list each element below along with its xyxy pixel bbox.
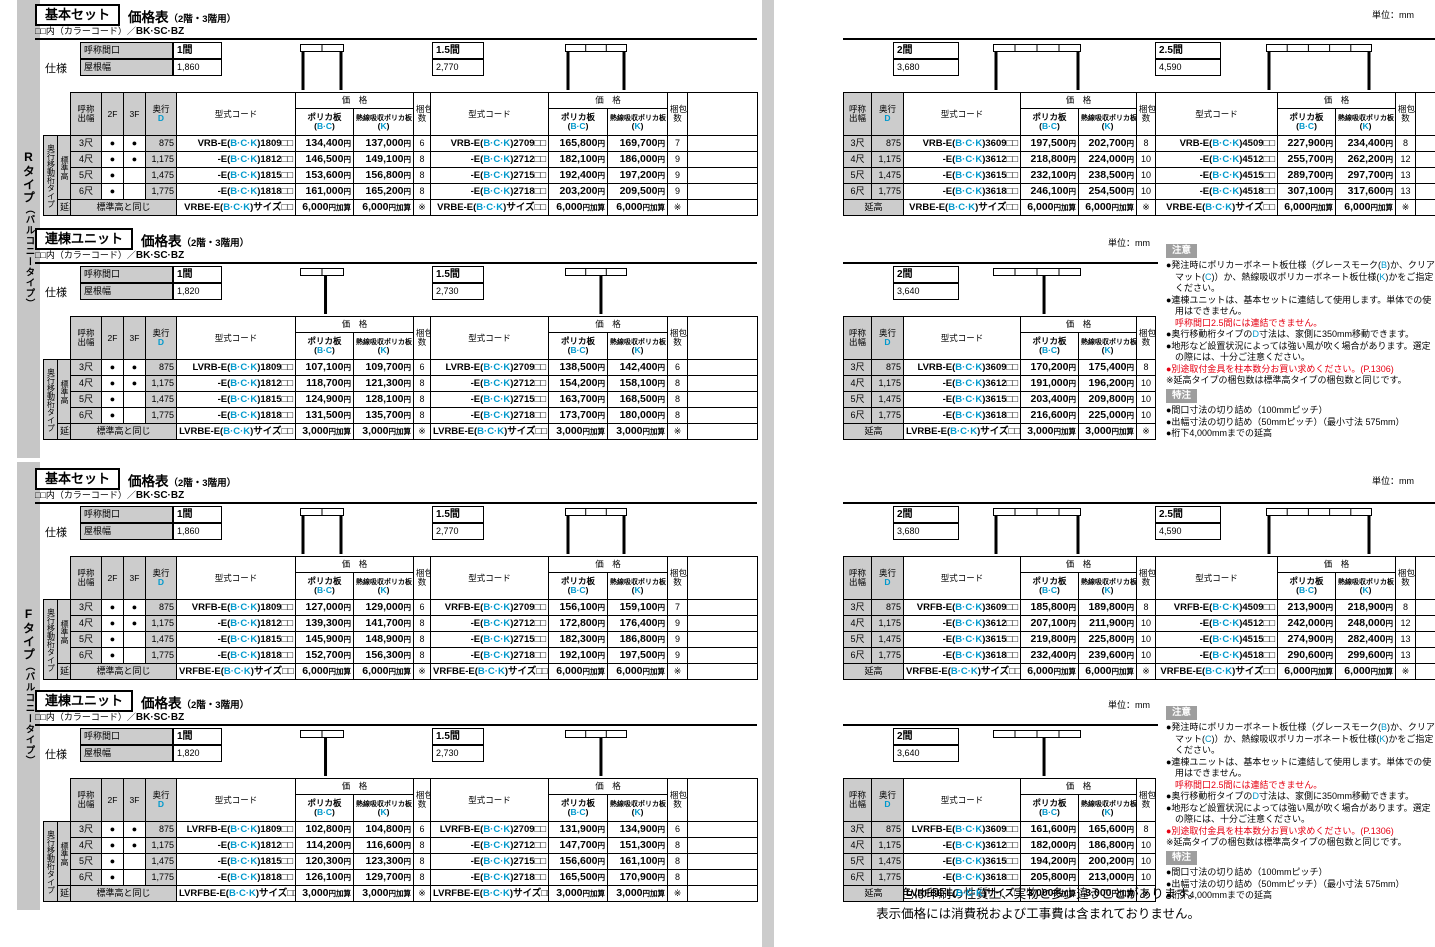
depth-value-cell: 1,775 xyxy=(872,184,904,200)
model-code-cell: LVRB-E(B·C·K)3609□□ xyxy=(904,360,1021,376)
roof-diagram xyxy=(565,730,627,781)
roof-diagram xyxy=(565,44,627,95)
floor-2f-dot-cell: ● xyxy=(102,632,124,648)
price-bc-cell: 161,600円 xyxy=(1021,822,1079,838)
pack-count-cell: 10 xyxy=(1137,152,1156,168)
col-header-model: 型式コード xyxy=(431,93,549,136)
ext-price-bc-cell: 3,000円加算 xyxy=(549,424,608,440)
col-header-model: 型式コード xyxy=(904,93,1021,136)
special-order-badge: 特注 xyxy=(1166,851,1197,865)
col-header-2f: 2F xyxy=(102,317,124,360)
depth-value-cell: 1,775 xyxy=(146,648,177,664)
ext-price-bc-cell: 6,000円加算 xyxy=(1021,200,1079,216)
col-header-pack: 梱包数 xyxy=(668,317,688,360)
empty-spacer-col xyxy=(1416,93,1435,136)
model-code-cell: -E(B·C·K)1812□□ xyxy=(177,616,296,632)
caution-item: ●連棟ユニットは、基本セットに連結して使用します。単体での使用はできません。 xyxy=(1166,295,1435,318)
price-k-cell: 158,100円 xyxy=(608,376,668,392)
col-header-depth: 奥行D xyxy=(872,93,904,136)
pack-count-cell: 10 xyxy=(1137,616,1156,632)
pack-count-cell: 6 xyxy=(414,822,431,838)
empty-spacer-col xyxy=(688,136,758,152)
notes-block: 注意●発注時にポリカーボネート板仕様（グレースモーク(B)か、クリアマット(C)… xyxy=(1166,704,1435,902)
ext-price-k-cell: 3,000円加算 xyxy=(354,886,414,902)
pack-count-cell: 7 xyxy=(668,136,688,152)
name-width-cell: 4尺 xyxy=(71,376,102,392)
model-code-cell: -E(B·C·K)1815□□ xyxy=(177,168,296,184)
depth-value-cell: 1,475 xyxy=(872,392,904,408)
roof-diagram xyxy=(1266,44,1372,95)
model-code-cell: -E(B·C·K)2718□□ xyxy=(431,408,549,424)
ext-price-bc-cell: 6,000円加算 xyxy=(549,200,608,216)
depth-value-cell: 1,475 xyxy=(146,168,177,184)
name-width-cell: 5尺 xyxy=(844,168,872,184)
name-width-cell: 3尺 xyxy=(844,822,872,838)
price-k-cell: 299,600円 xyxy=(1336,648,1396,664)
empty-spacer-col xyxy=(1416,632,1435,648)
unit-label: 単位：mm xyxy=(1372,474,1414,487)
model-code-cell: LVRB-E(B·C·K)2709□□ xyxy=(431,360,549,376)
empty-spacer-col xyxy=(1416,136,1435,152)
floor-3f-dot-cell: ● xyxy=(124,838,146,854)
depth-value-cell: 1,175 xyxy=(872,376,904,392)
col-header-price: 価 格 xyxy=(296,93,414,109)
col-header-heat-absorb: 熱線吸収ポリカ板(K) xyxy=(1079,109,1137,136)
price-k-cell: 161,100円 xyxy=(608,854,668,870)
ext-pack-cell: ※ xyxy=(414,886,431,902)
spec-label: 仕様 xyxy=(45,524,67,540)
price-k-cell: 197,200円 xyxy=(608,168,668,184)
price-k-cell: 213,000円 xyxy=(1079,870,1137,886)
ext-price-k-cell: 3,000円加算 xyxy=(1079,424,1137,440)
ext-model-code-cell: VRBE-E(B·C·K)サイズ□□ xyxy=(177,200,296,216)
model-code-cell: -E(B·C·K)1812□□ xyxy=(177,838,296,854)
pack-count-cell: 9 xyxy=(668,184,688,200)
price-bc-cell: 131,900円 xyxy=(549,822,608,838)
name-width-cell: 4尺 xyxy=(71,838,102,854)
empty-spacer-col xyxy=(1416,152,1435,168)
price-k-cell: 196,200円 xyxy=(1079,376,1137,392)
col-header-3f: 3F xyxy=(124,557,146,600)
price-bc-cell: 165,500円 xyxy=(549,870,608,886)
price-bc-cell: 165,800円 xyxy=(549,136,608,152)
pack-count-cell: 8 xyxy=(414,376,431,392)
pack-count-cell: 8 xyxy=(414,408,431,424)
std-height-vertical-label: 標準高 xyxy=(58,600,71,664)
price-k-cell: 168,500円 xyxy=(608,392,668,408)
col-header-heat-absorb: 熱線吸収ポリカ板(K) xyxy=(608,109,668,136)
roof-width-value: 2,770 xyxy=(432,59,484,76)
price-bc-cell: 170,200円 xyxy=(1021,360,1079,376)
ext-height-label: 延高 xyxy=(844,200,904,216)
price-table-right: 呼称出幅奥行D型式コード価 格梱包数ポリカ板(B·C)熱線吸収ポリカ板(K)3尺… xyxy=(843,316,1156,440)
roof-width-row-label: 屋根幅 xyxy=(80,745,173,762)
name-width-cell: 5尺 xyxy=(71,392,102,408)
col-header-pack: 梱包数 xyxy=(1137,317,1156,360)
span-value: 2.5間 xyxy=(1155,42,1221,59)
price-k-cell: 151,300円 xyxy=(608,838,668,854)
model-code-cell: -E(B·C·K)3615□□ xyxy=(904,168,1021,184)
model-code-cell: -E(B·C·K)3615□□ xyxy=(904,392,1021,408)
depth-value-cell: 1,175 xyxy=(146,616,177,632)
floor-2f-dot-cell: ● xyxy=(102,376,124,392)
floor-2f-dot-cell: ● xyxy=(102,136,124,152)
price-table-right: 呼称出幅奥行D型式コード価 格梱包数ポリカ板(B·C)熱線吸収ポリカ板(K)3尺… xyxy=(843,778,1156,902)
ext-price-k-cell: 3,000円加算 xyxy=(354,424,414,440)
unit-label: 単位：mm xyxy=(1372,8,1414,21)
pack-count-cell: 10 xyxy=(1137,648,1156,664)
price-k-cell: 189,800円 xyxy=(1079,600,1137,616)
pack-count-cell: 6 xyxy=(668,360,688,376)
model-code-cell: -E(B·C·K)1815□□ xyxy=(177,632,296,648)
col-header-polycarb: ポリカ板(B·C) xyxy=(549,573,608,600)
col-header-model: 型式コード xyxy=(904,779,1021,822)
price-bc-cell: 227,900円 xyxy=(1278,136,1336,152)
floor-3f-dot-cell: ● xyxy=(124,600,146,616)
ext-model-code-cell: LVRBE-E(B·C·K)サイズ□□ xyxy=(177,424,296,440)
col-header-pack: 梱包数 xyxy=(668,779,688,822)
depth-value-cell: 875 xyxy=(146,600,177,616)
pack-count-cell: 8 xyxy=(414,392,431,408)
pack-count-cell: 13 xyxy=(1396,632,1416,648)
floor-2f-dot-cell: ● xyxy=(102,152,124,168)
price-table-left: 呼称出幅2F3F奥行D型式コード価 格梱包数型式コード価 格梱包数ポリカ板(B·… xyxy=(43,778,758,902)
empty-spacer-col xyxy=(1416,168,1435,184)
pack-count-cell: 9 xyxy=(668,632,688,648)
price-bc-cell: 124,900円 xyxy=(296,392,354,408)
name-width-cell: 6尺 xyxy=(71,184,102,200)
depth-value-cell: 1,775 xyxy=(872,870,904,886)
std-height-vertical-label: 標準高 xyxy=(58,360,71,424)
empty-spacer-col xyxy=(688,557,758,600)
name-width-cell: 3尺 xyxy=(71,600,102,616)
roof-width-value: 4,590 xyxy=(1155,59,1221,76)
col-header-price: 価 格 xyxy=(296,317,414,333)
price-k-cell: 186,800円 xyxy=(608,632,668,648)
pack-count-cell: 8 xyxy=(414,184,431,200)
floor-3f-dot-cell xyxy=(124,870,146,886)
col-header-polycarb: ポリカ板(B·C) xyxy=(1021,333,1079,360)
caution-item: ※延高タイプの梱包数は標準高タイプの梱包数と同じです。 xyxy=(1166,837,1435,849)
col-header-model: 型式コード xyxy=(177,317,296,360)
floor-2f-dot-cell: ● xyxy=(102,822,124,838)
span-value: 2間 xyxy=(893,266,959,283)
price-k-cell: 135,700円 xyxy=(354,408,414,424)
ext-model-code-cell: VRFBE-E(B·C·K)サイズ□□ xyxy=(431,664,549,680)
col-header-polycarb: ポリカ板(B·C) xyxy=(1278,573,1336,600)
roof-width-value: 3,640 xyxy=(893,745,959,762)
pack-count-cell: 8 xyxy=(1396,600,1416,616)
header-spacer xyxy=(44,317,71,360)
span-value: 2.5間 xyxy=(1155,506,1221,523)
empty-spacer-col xyxy=(1416,648,1435,664)
caution-badge: 注意 xyxy=(1166,706,1197,720)
col-header-model: 型式コード xyxy=(1156,93,1278,136)
floor-3f-dot-cell: ● xyxy=(124,360,146,376)
ext-pack-cell: ※ xyxy=(1137,886,1156,902)
roof-diagram xyxy=(993,730,1081,781)
floor-2f-dot-cell: ● xyxy=(102,360,124,376)
col-header-polycarb: ポリカ板(B·C) xyxy=(296,795,354,822)
col-header-polycarb: ポリカ板(B·C) xyxy=(549,333,608,360)
name-width-cell: 5尺 xyxy=(71,632,102,648)
special-order-item: ●間口寸法の切り詰め（100mmピッチ） xyxy=(1166,867,1435,879)
col-header-name-width: 呼称出幅 xyxy=(71,557,102,600)
price-k-cell: 134,900円 xyxy=(608,822,668,838)
col-header-price: 価 格 xyxy=(1021,317,1137,333)
col-header-price: 価 格 xyxy=(549,317,668,333)
roof-diagram xyxy=(300,268,344,319)
name-width-cell: 3尺 xyxy=(71,136,102,152)
model-code-cell: -E(B·C·K)3618□□ xyxy=(904,184,1021,200)
name-width-cell: 4尺 xyxy=(844,838,872,854)
span-value: 2間 xyxy=(893,506,959,523)
col-header-model: 型式コード xyxy=(177,93,296,136)
depth-value-cell: 1,775 xyxy=(146,870,177,886)
ext-price-bc-cell: 3,000円加算 xyxy=(296,886,354,902)
price-k-cell: 186,000円 xyxy=(608,152,668,168)
pack-count-cell: 8 xyxy=(414,870,431,886)
col-header-model: 型式コード xyxy=(431,317,549,360)
section-badge: 基本セット xyxy=(35,4,120,26)
col-header-polycarb: ポリカ板(B·C) xyxy=(549,109,608,136)
col-header-3f: 3F xyxy=(124,779,146,822)
col-header-name-width: 呼称出幅 xyxy=(71,317,102,360)
ext-price-bc-cell: 6,000円加算 xyxy=(296,664,354,680)
price-bc-cell: 182,100円 xyxy=(549,152,608,168)
depth-value-cell: 1,475 xyxy=(872,168,904,184)
span-value: 1間 xyxy=(173,728,222,745)
price-k-cell: 209,800円 xyxy=(1079,392,1137,408)
price-bc-cell: 173,700円 xyxy=(549,408,608,424)
price-k-cell: 137,000円 xyxy=(354,136,414,152)
col-header-2f: 2F xyxy=(102,557,124,600)
price-bc-cell: 242,000円 xyxy=(1278,616,1336,632)
name-width-cell: 3尺 xyxy=(71,360,102,376)
model-code-cell: -E(B·C·K)3615□□ xyxy=(904,632,1021,648)
col-header-price: 価 格 xyxy=(296,779,414,795)
span-value: 2間 xyxy=(893,728,959,745)
roof-diagram xyxy=(993,44,1081,95)
ext-height-label: 延高 xyxy=(58,886,71,902)
roof-diagram xyxy=(1266,508,1372,559)
col-header-pack: 梱包数 xyxy=(668,93,688,136)
model-code-cell: -E(B·C·K)4515□□ xyxy=(1156,168,1278,184)
pack-count-cell: 8 xyxy=(668,376,688,392)
span-value: 1.5間 xyxy=(432,42,484,59)
col-header-price: 価 格 xyxy=(296,557,414,573)
ext-price-k-cell: 6,000円加算 xyxy=(1336,200,1396,216)
model-code-cell: -E(B·C·K)1812□□ xyxy=(177,152,296,168)
model-code-cell: LVRFB-E(B·C·K)3609□□ xyxy=(904,822,1021,838)
section-title-row: 基本セット価格表（2階・3階用） xyxy=(35,468,236,490)
pack-count-cell: 8 xyxy=(1137,600,1156,616)
span-value: 1.5間 xyxy=(432,728,484,745)
section-title-row: 基本セット価格表（2階・3階用） xyxy=(35,4,236,26)
caution-item: ●奥行移動桁タイプのD寸法は、家側に350mm移動できます。 xyxy=(1166,791,1435,803)
floor-3f-dot-cell xyxy=(124,648,146,664)
section-title-row: 連棟ユニット価格表（2階・3階用） xyxy=(35,690,249,712)
col-header-depth: 奥行D xyxy=(872,317,904,360)
depth-value-cell: 1,775 xyxy=(146,408,177,424)
price-bc-cell: 192,100円 xyxy=(549,648,608,664)
price-k-cell: 156,800円 xyxy=(354,168,414,184)
price-bc-cell: 172,800円 xyxy=(549,616,608,632)
model-code-cell: LVRB-E(B·C·K)1809□□ xyxy=(177,360,296,376)
pack-count-cell: 8 xyxy=(668,838,688,854)
model-code-cell: -E(B·C·K)3618□□ xyxy=(904,870,1021,886)
price-bc-cell: 232,400円 xyxy=(1021,648,1079,664)
roof-width-row-label: 屋根幅 xyxy=(80,59,173,76)
roof-width-row-label: 屋根幅 xyxy=(80,283,173,300)
header-spacer xyxy=(44,93,71,136)
ext-height-label: 延高 xyxy=(58,200,71,216)
price-k-cell: 165,200円 xyxy=(354,184,414,200)
price-table-left: 呼称出幅2F3F奥行D型式コード価 格梱包数型式コード価 格梱包数ポリカ板(B·… xyxy=(43,316,758,440)
same-as-std-cell: 標準高と同じ xyxy=(71,200,177,216)
col-header-polycarb: ポリカ板(B·C) xyxy=(1021,573,1079,600)
depth-value-cell: 1,175 xyxy=(146,376,177,392)
name-width-cell: 4尺 xyxy=(844,376,872,392)
depth-value-cell: 875 xyxy=(872,822,904,838)
ext-pack-cell: ※ xyxy=(1396,664,1416,680)
col-header-pack: 梱包数 xyxy=(1137,779,1156,822)
depth-value-cell: 1,175 xyxy=(872,152,904,168)
model-code-cell: -E(B·C·K)1818□□ xyxy=(177,648,296,664)
price-bc-cell: 232,100円 xyxy=(1021,168,1079,184)
spec-label: 仕様 xyxy=(45,60,67,76)
pack-count-cell: 9 xyxy=(668,152,688,168)
empty-spacer-col xyxy=(688,408,758,424)
model-code-cell: -E(B·C·K)2712□□ xyxy=(431,376,549,392)
ext-height-label: 延高 xyxy=(58,424,71,440)
roof-width-row-label: 屋根幅 xyxy=(80,523,173,540)
pack-count-cell: 10 xyxy=(1137,184,1156,200)
floor-2f-dot-cell: ● xyxy=(102,600,124,616)
pack-count-cell: 10 xyxy=(1137,408,1156,424)
col-header-heat-absorb: 熱線吸収ポリカ板(K) xyxy=(1336,109,1396,136)
header-spacer xyxy=(44,557,71,600)
price-k-cell: 123,300円 xyxy=(354,854,414,870)
model-code-cell: -E(B·C·K)4512□□ xyxy=(1156,616,1278,632)
model-code-cell: -E(B·C·K)2718□□ xyxy=(431,648,549,664)
col-header-pack: 梱包数 xyxy=(414,93,431,136)
span-value: 1間 xyxy=(173,42,222,59)
empty-spacer-col xyxy=(688,93,758,136)
roof-width-value: 3,640 xyxy=(893,283,959,300)
price-bc-cell: 203,200円 xyxy=(549,184,608,200)
model-code-cell: LVRFB-E(B·C·K)2709□□ xyxy=(431,822,549,838)
empty-spacer-col xyxy=(688,822,758,838)
floor-3f-dot-cell: ● xyxy=(124,136,146,152)
price-bc-cell: 161,000円 xyxy=(296,184,354,200)
col-header-heat-absorb: 熱線吸収ポリカ板(K) xyxy=(608,573,668,600)
price-table-left: 呼称出幅2F3F奥行D型式コード価 格梱包数型式コード価 格梱包数ポリカ板(B·… xyxy=(43,92,758,216)
name-width-cell: 3尺 xyxy=(844,136,872,152)
col-header-depth: 奥行D xyxy=(146,779,177,822)
span-value: 1.5間 xyxy=(432,506,484,523)
spec-label: 仕様 xyxy=(45,284,67,300)
col-header-heat-absorb: 熱線吸収ポリカ板(K) xyxy=(608,333,668,360)
price-k-cell: 218,900円 xyxy=(1336,600,1396,616)
pack-count-cell: 10 xyxy=(1137,854,1156,870)
name-width-cell: 4尺 xyxy=(71,616,102,632)
col-header-depth: 奥行D xyxy=(146,557,177,600)
ext-price-bc-cell: 3,000円加算 xyxy=(549,886,608,902)
roof-width-value: 2,730 xyxy=(432,283,484,300)
price-bc-cell: 146,500円 xyxy=(296,152,354,168)
name-width-cell: 5尺 xyxy=(844,392,872,408)
price-bc-cell: 154,200円 xyxy=(549,376,608,392)
pack-count-cell: 6 xyxy=(414,600,431,616)
pack-count-cell: 12 xyxy=(1396,152,1416,168)
depth-value-cell: 1,775 xyxy=(146,184,177,200)
col-header-price: 価 格 xyxy=(1021,557,1137,573)
caution-item: ●発注時にポリカーボネート板仕様（グレースモーク(B)か、クリアマット(C)）か… xyxy=(1166,722,1435,757)
col-header-heat-absorb: 熱線吸収ポリカ板(K) xyxy=(608,795,668,822)
color-code-rule-right xyxy=(843,710,1158,726)
name-width-cell: 3尺 xyxy=(844,600,872,616)
price-bc-cell: 145,900円 xyxy=(296,632,354,648)
model-code-cell: -E(B·C·K)2715□□ xyxy=(431,632,549,648)
caution-item: ●別途取付金具を柱本数分お買い求めください。(P.1306) xyxy=(1166,364,1435,376)
price-bc-cell: 102,800円 xyxy=(296,822,354,838)
price-bc-cell: 120,300円 xyxy=(296,854,354,870)
col-header-price: 価 格 xyxy=(549,779,668,795)
header-spacer xyxy=(44,779,71,822)
ext-price-k-cell: 3,000円加算 xyxy=(608,424,668,440)
empty-spacer-col xyxy=(688,360,758,376)
model-code-cell: -E(B·C·K)3618□□ xyxy=(904,408,1021,424)
price-bc-cell: 131,500円 xyxy=(296,408,354,424)
std-height-vertical-label: 標準高 xyxy=(58,822,71,886)
col-header-pack: 梱包数 xyxy=(414,779,431,822)
color-code-rule-right xyxy=(843,248,1158,264)
pack-count-cell: 8 xyxy=(414,168,431,184)
price-bc-cell: 191,000円 xyxy=(1021,376,1079,392)
ext-model-code-cell: LVRBE-E(B·C·K)サイズ□□ xyxy=(431,424,549,440)
col-header-price: 価 格 xyxy=(1021,779,1137,795)
depth-value-cell: 875 xyxy=(146,360,177,376)
price-k-cell: 116,600円 xyxy=(354,838,414,854)
price-bc-cell: 153,600円 xyxy=(296,168,354,184)
col-header-name-width: 呼称出幅 xyxy=(844,93,872,136)
col-header-pack: 梱包数 xyxy=(1396,557,1416,600)
ext-price-k-cell: 3,000円加算 xyxy=(1079,886,1137,902)
floor-2f-dot-cell: ● xyxy=(102,408,124,424)
price-table-left: 呼称出幅2F3F奥行D型式コード価 格梱包数型式コード価 格梱包数ポリカ板(B·… xyxy=(43,556,758,680)
price-k-cell: 262,200円 xyxy=(1336,152,1396,168)
col-header-pack: 梱包数 xyxy=(1396,93,1416,136)
model-code-cell: VRFB-E(B·C·K)1809□□ xyxy=(177,600,296,616)
section-badge: 連棟ユニット xyxy=(35,228,133,250)
empty-spacer-col xyxy=(688,376,758,392)
depth-value-cell: 875 xyxy=(146,822,177,838)
name-width-cell: 4尺 xyxy=(71,152,102,168)
roof-diagram xyxy=(300,508,344,559)
price-bc-cell: 138,500円 xyxy=(549,360,608,376)
price-k-cell: 148,900円 xyxy=(354,632,414,648)
model-code-cell: -E(B·C·K)2712□□ xyxy=(431,616,549,632)
price-bc-cell: 118,700円 xyxy=(296,376,354,392)
col-header-pack: 梱包数 xyxy=(668,557,688,600)
price-k-cell: 239,600円 xyxy=(1079,648,1137,664)
price-bc-cell: 182,000円 xyxy=(1021,838,1079,854)
roof-width-value: 1,820 xyxy=(173,283,222,300)
caution-item: ※延高タイプの梱包数は標準高タイプの梱包数と同じです。 xyxy=(1166,375,1435,387)
model-code-cell: VRB-E(B·C·K)4509□□ xyxy=(1156,136,1278,152)
floor-2f-dot-cell: ● xyxy=(102,870,124,886)
